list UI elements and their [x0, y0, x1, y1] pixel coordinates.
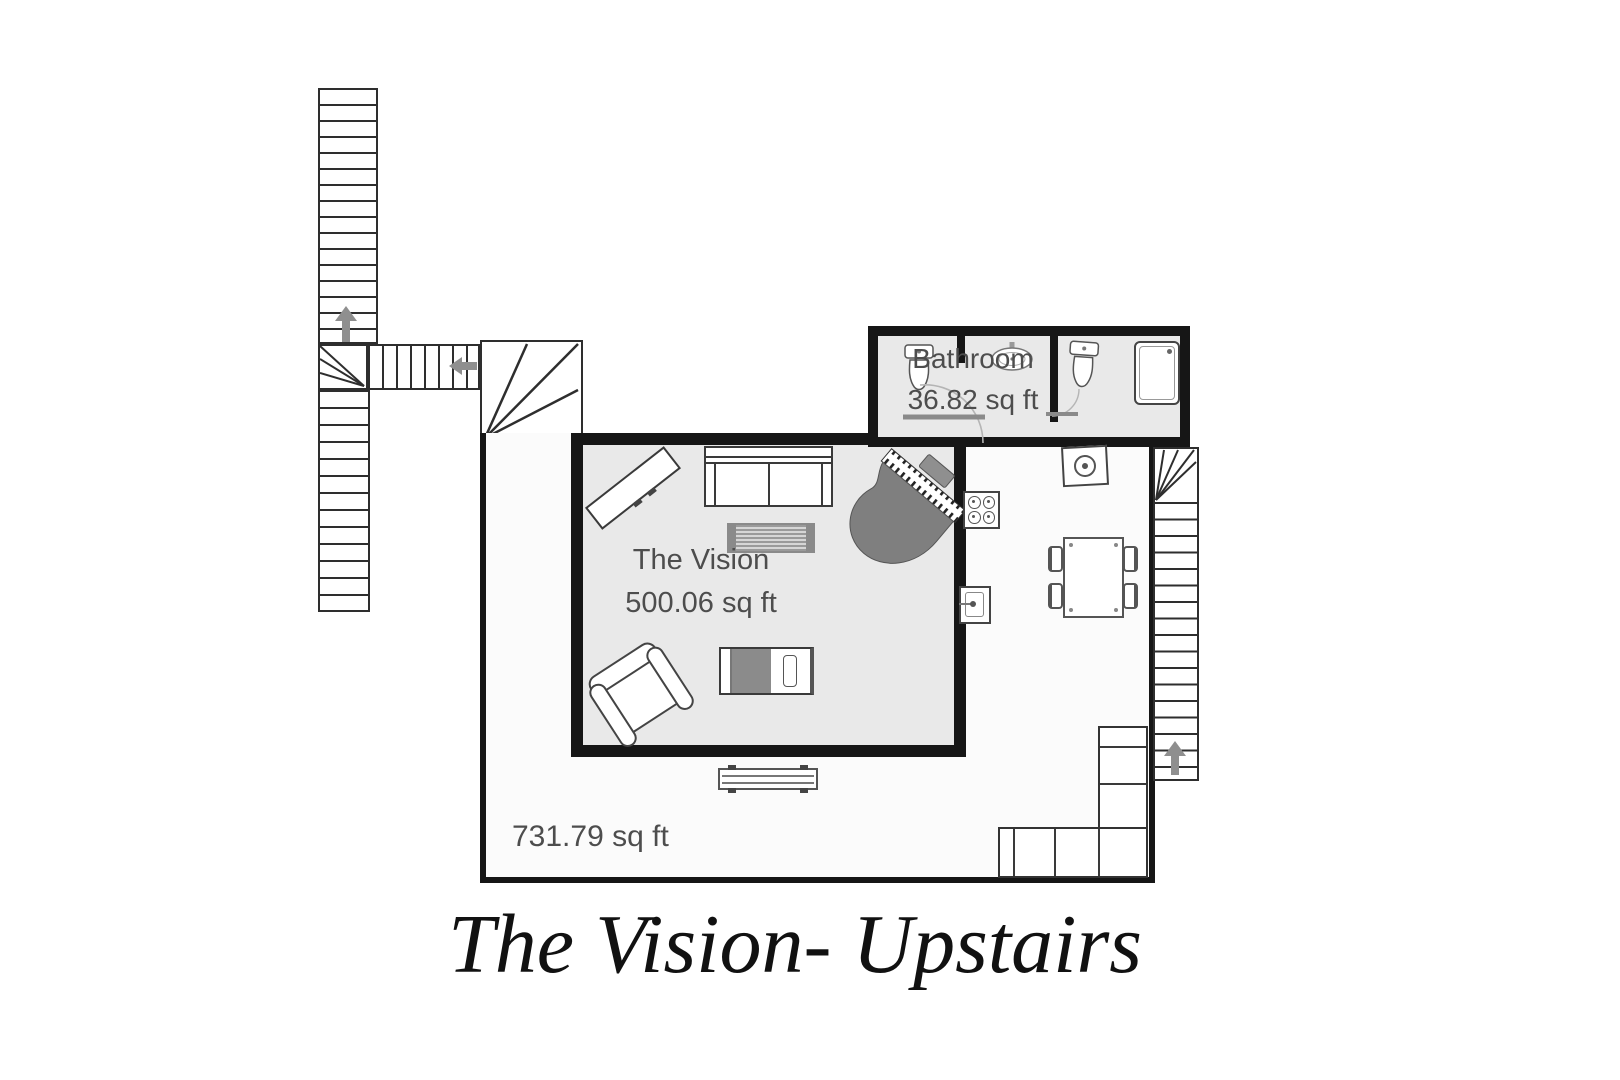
open-area-label: 731.79 sq ft: [512, 820, 669, 855]
vision-room-area: 500.06 sq ft: [541, 587, 861, 620]
bathroom-room-area: 36.82 sq ft: [813, 384, 1133, 416]
floorplan-canvas: The Vision 500.06 sq ft Bathroom 36.82 s…: [0, 0, 1620, 1080]
staircase-lower-left: [318, 390, 370, 612]
stairs-up-arrow-stem: [342, 320, 350, 342]
stair-winder-left: [318, 344, 368, 390]
winder-fan-lines: [1155, 449, 1197, 502]
vision-room-name: The Vision: [541, 544, 861, 577]
dining-chair-icon: [1123, 546, 1138, 572]
stairs-up-arrow-stem: [1171, 754, 1179, 775]
bench-icon: [718, 768, 818, 790]
staircase-right: [1153, 502, 1199, 781]
sofa-icon: [704, 446, 833, 507]
plan-title: The Vision- Upstairs: [0, 896, 1590, 993]
dining-chair-icon: [1123, 583, 1138, 609]
corner-sofa-horizontal: [998, 827, 1148, 878]
bathroom-room-name: Bathroom: [813, 343, 1133, 375]
winder-fan-lines: [320, 346, 366, 388]
stairs-up-arrow-icon: [335, 306, 357, 321]
kitchen-sink-icon: [959, 586, 991, 624]
dining-chair-icon: [1048, 546, 1063, 572]
dining-table-icon: [1063, 537, 1124, 618]
washing-machine-icon: [1061, 445, 1109, 487]
dining-chair-icon: [1048, 583, 1063, 609]
bed-icon: [719, 647, 814, 695]
right-stair-winder: [1153, 447, 1199, 502]
winder-fan-lines: [482, 342, 581, 441]
stove-icon: [963, 491, 1000, 529]
stairs-left-arrow-stem: [461, 362, 477, 370]
stair-winder-corner: [480, 340, 583, 443]
